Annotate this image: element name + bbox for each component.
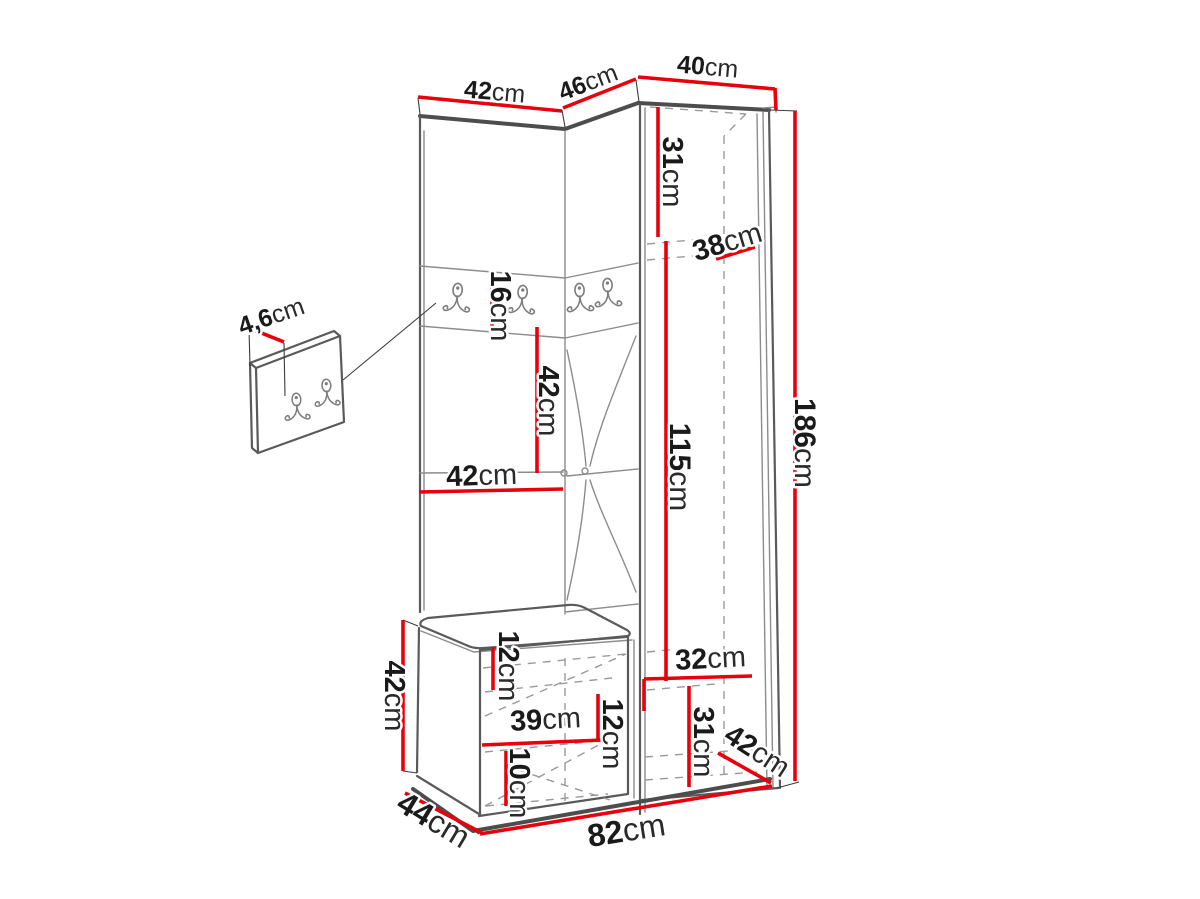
dim-label-lower-inner-height: 31cm: [687, 707, 719, 778]
dim-label-wardrobe-inner-height: 115cm: [663, 423, 696, 511]
door-edge-1: [757, 114, 767, 789]
wall-panel-pointer-line: [343, 303, 436, 380]
dim-label-bench-inner-height: 12cm: [596, 699, 628, 770]
dim-label-hook-panel-height: 16cm: [484, 271, 516, 342]
dim-label-upper-shelf-depth: 38cm: [689, 217, 766, 268]
upholstery-seam-2: [590, 336, 636, 466]
dim-label-open-shelf-height: 42cm: [532, 366, 564, 437]
upholstery-seam-1: [567, 350, 586, 466]
dimension-diagram: 42cm 46cm 40cm 31cm 38cm 16cm 42cm 42cm …: [0, 0, 1200, 899]
dim-label-total-height: 186cm: [788, 398, 821, 488]
dim-label-bench-depth: 44cm: [391, 784, 477, 855]
bench-seat-top: [420, 605, 629, 648]
upholstery-seam-4: [590, 480, 636, 592]
angled-panel-division-2: [565, 323, 638, 338]
bench-seat-thickness: [421, 631, 632, 652]
dimension-labels: 42cm 46cm 40cm 31cm 38cm 16cm 42cm 42cm …: [235, 50, 821, 855]
coat-hook-icon: [314, 378, 341, 406]
coat-hook-icon: [284, 392, 311, 420]
dim-label-top-right-width: 40cm: [676, 50, 739, 83]
dim-label-bench-bottom-inset: 10cm: [503, 748, 535, 819]
dim-label-top-left-width: 42cm: [463, 75, 526, 108]
dim-label-bench-height: 42cm: [378, 661, 410, 732]
dim-label-bench-top-inset: 12cm: [492, 631, 524, 702]
door-front-edge: [769, 110, 780, 788]
dim-label-wall-panel-depth: 4,6cm: [235, 292, 308, 341]
upholstery-seam-3: [567, 480, 586, 600]
dim-label-upper-right-inner-height: 31cm: [656, 137, 688, 208]
upholstery-seam-5: [567, 469, 638, 476]
unit-top-edge: [420, 103, 769, 129]
dim-line-top-right-width-tick: [775, 88, 776, 110]
angled-panel-division-1: [565, 263, 638, 278]
diagram-canvas: 42cm 46cm 40cm 31cm 38cm 16cm 42cm 42cm …: [0, 0, 1200, 899]
dim-line-bench-inner-width: [482, 740, 603, 745]
coat-hook-icon: [443, 283, 471, 312]
bench-back-left-edge: [417, 628, 419, 772]
dim-label-lower-inner-width: 32cm: [674, 641, 747, 677]
tuft-button-1: [561, 470, 567, 476]
wall-hook-panel: [250, 331, 344, 453]
coat-hook-icon: [594, 278, 622, 307]
dim-line-lower-inner-width: [644, 676, 752, 679]
dim-label-bench-inner-width: 39cm: [509, 702, 582, 738]
dim-label-panel-width: 42cm: [446, 459, 518, 493]
coat-hook-icon: [566, 283, 594, 312]
unit-coat-hooks: [443, 278, 622, 314]
tuft-button-2: [582, 468, 588, 474]
